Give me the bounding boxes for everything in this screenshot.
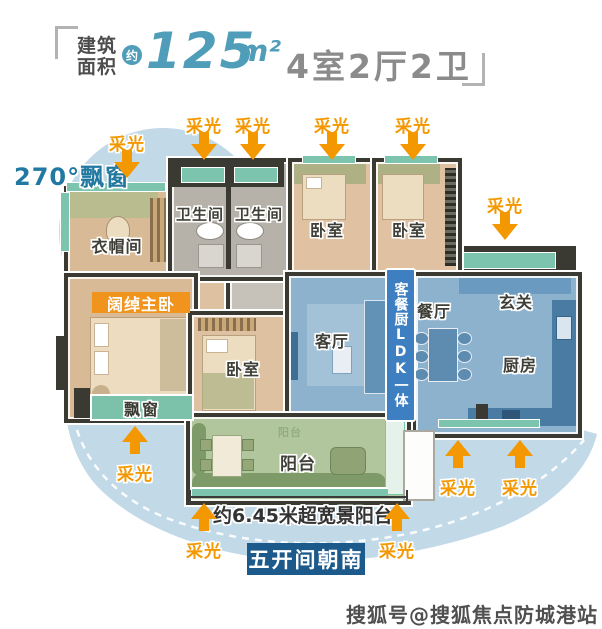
- dining-chair-3: [414, 368, 429, 381]
- area-label: 建筑 面积: [77, 36, 117, 77]
- bathroom-window-2: [234, 167, 278, 183]
- dining-chair-5: [457, 350, 472, 363]
- bedroom2-wardrobe: [445, 168, 456, 266]
- balcony-chair-3: [242, 439, 254, 451]
- toilet-2: [236, 222, 264, 240]
- south-facing-badge-text: 五开间朝南: [249, 544, 364, 574]
- bedroom2-bed: [382, 174, 424, 220]
- approx-circle: 约: [122, 45, 142, 65]
- dining-chair-1: [414, 332, 429, 345]
- foyer-window-top: [452, 252, 556, 269]
- toilet-1: [196, 222, 224, 240]
- daylight-arrow-10: [445, 440, 471, 468]
- bedroom-mid-pillow: [206, 339, 228, 353]
- bedroom-mid-wardrobe: [198, 318, 256, 331]
- foyer-label: 玄关: [499, 289, 533, 313]
- master-pillow-1: [94, 323, 109, 347]
- bedroom-mid-label: 卧室: [226, 356, 260, 380]
- area-unit: m²: [238, 34, 281, 68]
- bay-window-band-text: 飘窗: [124, 396, 160, 420]
- bathroom-window-1: [181, 167, 225, 183]
- daylight-arrow-4: [319, 132, 345, 160]
- header-corner-bracket-top-left: [55, 26, 78, 59]
- daylight-arrow-11: [507, 440, 533, 468]
- shower-1: [198, 244, 224, 268]
- floorplan-poster: 建筑 面积 约 125 m² 4室2厅2卫 衣帽间 卫生间 卫生间 卧室: [0, 0, 602, 629]
- ldk-area-room: [412, 272, 582, 438]
- area-label-line1: 建筑: [77, 36, 117, 57]
- living-room-label: 客厅: [315, 328, 349, 352]
- daylight-arrow-9: [384, 503, 410, 531]
- cloakroom-label: 衣帽间: [91, 233, 142, 257]
- dining-chair-4: [457, 332, 472, 345]
- daylight-arrow-1: [114, 150, 140, 178]
- bedroom-top2-label: 卧室: [392, 217, 426, 241]
- master-bed-runner: [160, 319, 186, 391]
- dining-room-label: 餐厅: [417, 298, 451, 322]
- kitchen-sink: [556, 316, 572, 340]
- dining-chair-6: [457, 368, 472, 381]
- daylight-arrow-6: [492, 212, 518, 240]
- balcony-small-label: 阳台: [278, 424, 302, 440]
- balcony-chair-1: [200, 439, 212, 451]
- dining-table: [428, 328, 458, 382]
- watermark: 搜狐号@搜狐焦点防城港站: [346, 599, 598, 628]
- daylight-arrow-8: [191, 503, 217, 531]
- dining-chair-2: [414, 350, 429, 363]
- daylight-label-9: 采光: [379, 537, 415, 562]
- master-bedroom-badge-text: 阔绰主卧: [107, 291, 175, 315]
- dimension-tick-right: [406, 490, 408, 504]
- cloakroom-mat: [70, 192, 158, 218]
- balcony-table: [212, 435, 242, 477]
- rooms-summary: 4室2厅2卫: [286, 40, 472, 88]
- bathroom-divider-wall: [226, 187, 231, 269]
- area-label-line2: 面积: [77, 57, 117, 78]
- bay-window-wall-block: [74, 388, 90, 418]
- bay-window-270-label: 270°飘窗: [14, 157, 130, 192]
- bedroom1-pillow: [306, 177, 322, 189]
- ldk-badge-text: 客餐厨LDK一体: [391, 282, 411, 408]
- south-facing-badge: 五开间朝南: [247, 543, 365, 575]
- daylight-arrow-2: [191, 132, 217, 160]
- daylight-label-8: 采光: [186, 537, 222, 562]
- master-bay-window-block: [56, 336, 68, 390]
- bathroom-1-label: 卫生间: [176, 204, 224, 225]
- cloakroom-wardrobe: [150, 198, 170, 262]
- daylight-arrow-7: [122, 426, 148, 454]
- cloakroom-window-left: [60, 192, 70, 252]
- daylight-label-10: 采光: [440, 474, 476, 499]
- bedroom-top1-label: 卧室: [310, 217, 344, 241]
- balcony-chair-2: [200, 459, 212, 471]
- balcony-width-label: 约6.45米超宽景阳台: [213, 501, 393, 528]
- living-tv-stand: [291, 332, 298, 380]
- daylight-label-11: 采光: [502, 474, 538, 499]
- kitchen-label: 厨房: [503, 352, 537, 376]
- balcony-label: 阳台: [280, 450, 316, 475]
- shower-2: [236, 244, 262, 268]
- balcony-lounge-chair: [330, 447, 366, 475]
- balcony-chair-4: [242, 459, 254, 471]
- kitchen-window-bottom: [438, 419, 540, 428]
- ldk-badge: 客餐厨LDK一体: [385, 268, 416, 422]
- bathroom-2-label: 卫生间: [235, 204, 283, 225]
- header-corner-bracket-bottom-right: [462, 53, 485, 86]
- balcony-side-strip: [385, 419, 405, 495]
- daylight-arrow-5: [400, 132, 426, 160]
- dimension-line: [190, 496, 408, 498]
- bay-window-band: 飘窗: [90, 394, 194, 421]
- master-pillow-2: [94, 351, 109, 375]
- dimension-tick-left: [189, 490, 191, 504]
- master-bedroom-badge: 阔绰主卧: [92, 292, 190, 313]
- daylight-arrow-3: [240, 132, 266, 160]
- living-sofa: [364, 300, 386, 394]
- daylight-label-7: 采光: [117, 460, 153, 485]
